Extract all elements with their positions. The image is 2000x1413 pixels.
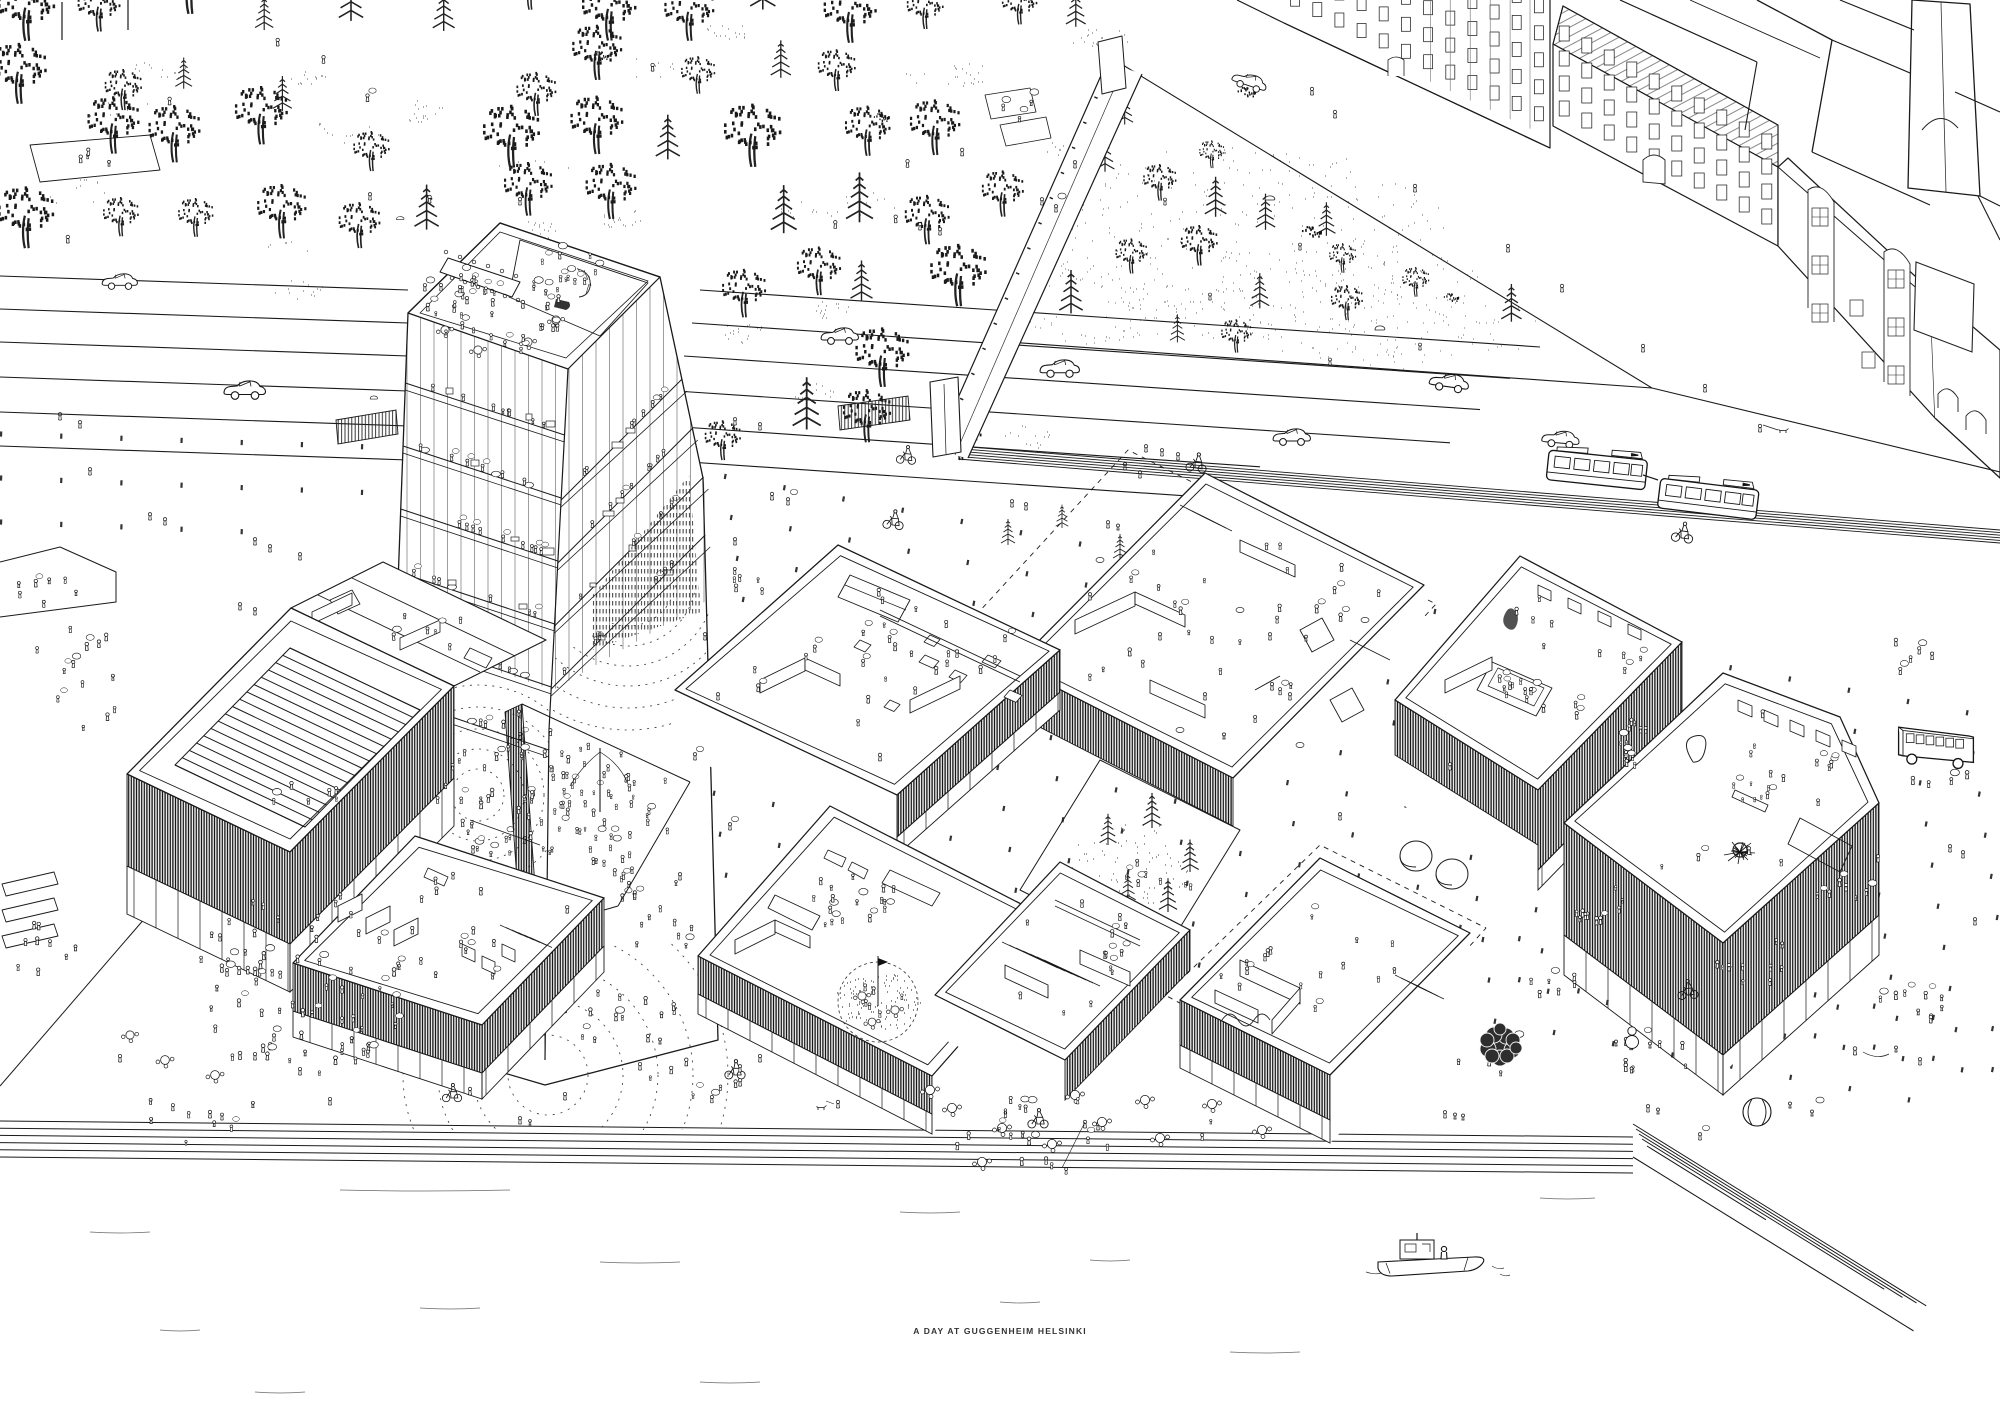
svg-text:A DAY AT GUGGENHEIM HELSINKI: A DAY AT GUGGENHEIM HELSINKI: [913, 1326, 1087, 1336]
